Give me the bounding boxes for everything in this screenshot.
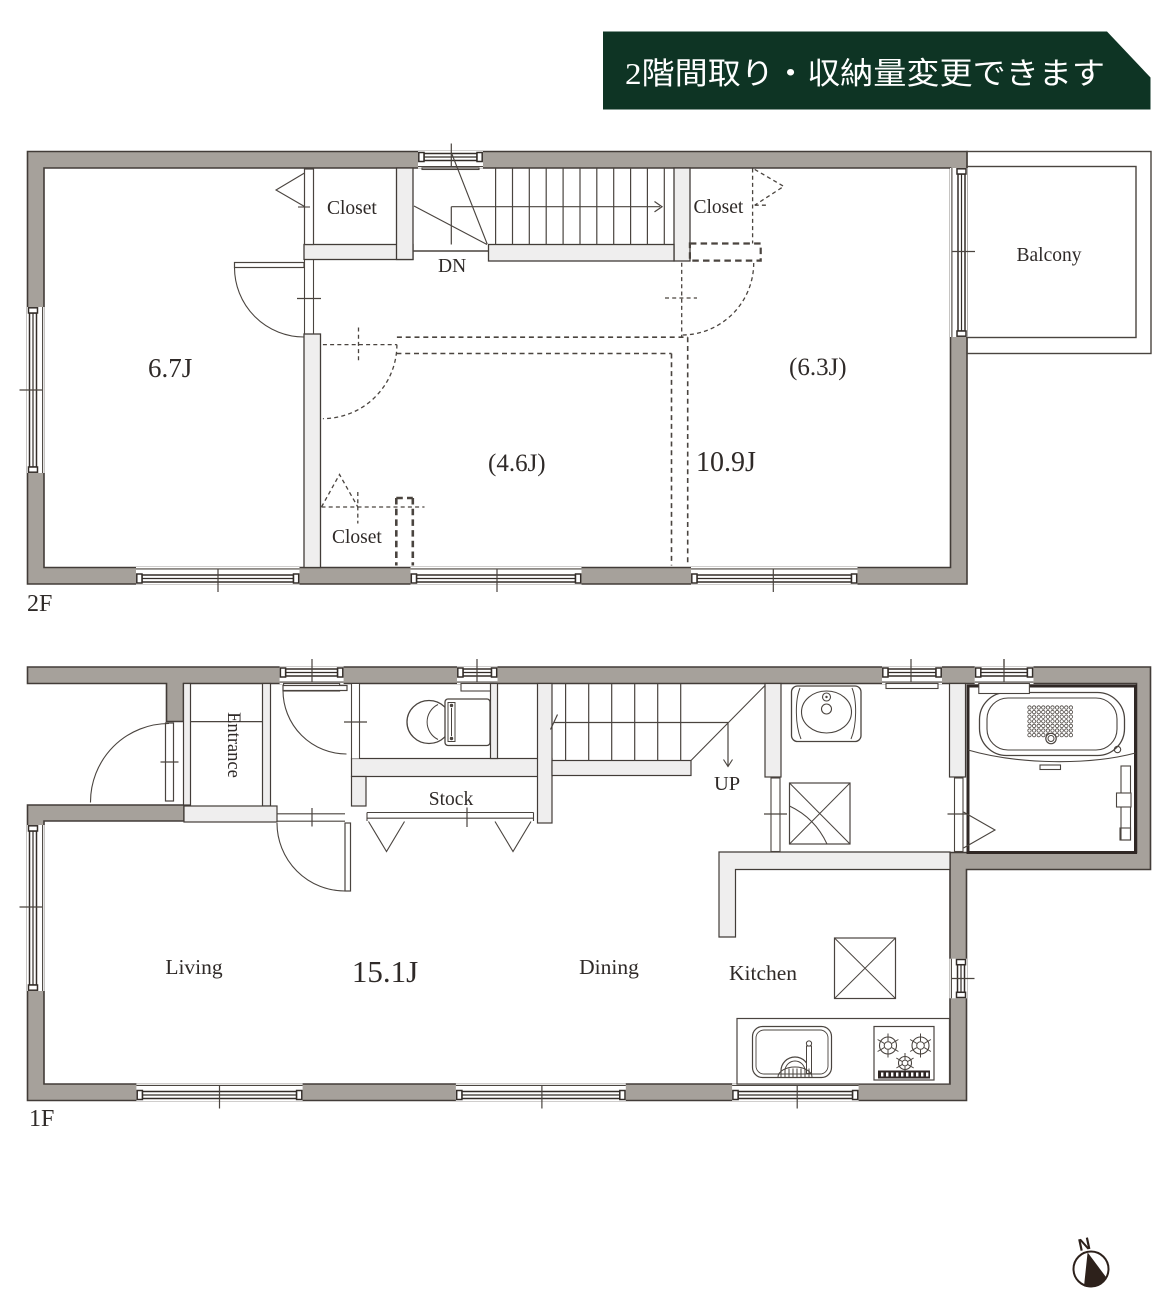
svg-text:Balcony: Balcony bbox=[1017, 245, 1082, 266]
svg-text:Closet: Closet bbox=[327, 198, 377, 219]
svg-text:Kitchen: Kitchen bbox=[729, 961, 797, 985]
svg-text:DN: DN bbox=[438, 256, 466, 277]
svg-text:Dining: Dining bbox=[579, 955, 639, 979]
svg-text:UP: UP bbox=[714, 773, 740, 795]
svg-text:(6.3J): (6.3J) bbox=[789, 354, 847, 381]
svg-text:Living: Living bbox=[165, 955, 223, 979]
svg-text:1F: 1F bbox=[29, 1106, 54, 1132]
svg-text:(4.6J): (4.6J) bbox=[488, 450, 546, 477]
svg-text:6.7J: 6.7J bbox=[148, 353, 192, 383]
svg-text:15.1J: 15.1J bbox=[352, 954, 418, 989]
svg-text:10.9J: 10.9J bbox=[696, 447, 756, 478]
svg-text:Closet: Closet bbox=[332, 527, 382, 548]
svg-text:Closet: Closet bbox=[694, 197, 744, 218]
svg-text:Entrance: Entrance bbox=[223, 712, 243, 778]
svg-text:Stock: Stock bbox=[429, 789, 474, 810]
svg-text:2階間取り・収納量変更できます: 2階間取り・収納量変更できます bbox=[625, 57, 1105, 91]
svg-text:2F: 2F bbox=[27, 591, 52, 617]
